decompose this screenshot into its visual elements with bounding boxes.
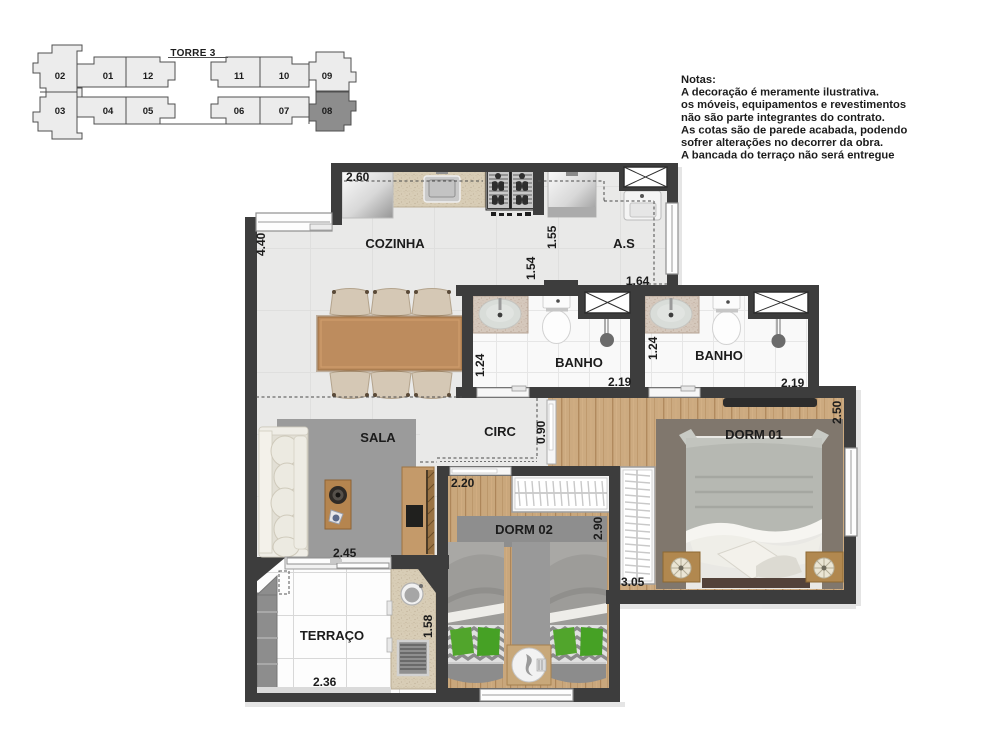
- svg-text:As cotas são de parede acabada: As cotas são de parede acabada, podendo: [681, 124, 907, 136]
- svg-text:03: 03: [55, 106, 66, 117]
- svg-text:BANHO: BANHO: [695, 348, 743, 363]
- svg-text:SALA: SALA: [360, 430, 396, 445]
- svg-text:02: 02: [55, 71, 66, 82]
- svg-text:BANHO: BANHO: [555, 355, 603, 370]
- svg-text:4.40: 4.40: [254, 232, 268, 256]
- svg-text:1.24: 1.24: [646, 336, 660, 360]
- svg-text:A decoração é meramente ilustr: A decoração é meramente ilustrativa.: [681, 87, 879, 99]
- svg-text:2.19: 2.19: [608, 375, 632, 389]
- svg-text:05: 05: [143, 106, 154, 117]
- svg-text:2.45: 2.45: [333, 546, 357, 560]
- svg-text:1.54: 1.54: [524, 256, 538, 280]
- svg-text:06: 06: [234, 106, 245, 117]
- svg-text:2.90: 2.90: [591, 516, 605, 540]
- svg-text:DORM 02: DORM 02: [495, 522, 553, 537]
- svg-text:TORRE 3: TORRE 3: [170, 48, 215, 59]
- svg-text:1.55: 1.55: [545, 225, 559, 249]
- svg-text:11: 11: [234, 71, 245, 82]
- svg-text:09: 09: [322, 71, 333, 82]
- svg-text:A bancada do terraço não será: A bancada do terraço não será entregue: [681, 150, 894, 162]
- svg-text:TERRAÇO: TERRAÇO: [300, 628, 364, 643]
- svg-text:2.36: 2.36: [313, 675, 337, 689]
- svg-text:os móveis, equipamentos e reve: os móveis, equipamentos e revestimentos: [681, 99, 906, 111]
- svg-text:08: 08: [322, 106, 333, 117]
- svg-text:0.90: 0.90: [534, 420, 548, 444]
- svg-text:1.64: 1.64: [626, 274, 650, 288]
- svg-text:2.60: 2.60: [346, 170, 370, 184]
- svg-text:Notas:: Notas:: [681, 74, 716, 86]
- svg-text:04: 04: [103, 106, 114, 117]
- svg-text:não são parte integrantes do c: não são parte integrantes do contrato.: [681, 112, 885, 124]
- svg-text:12: 12: [143, 71, 154, 82]
- svg-text:CIRC: CIRC: [484, 424, 516, 439]
- svg-text:DORM 01: DORM 01: [725, 427, 783, 442]
- svg-text:2.50: 2.50: [830, 400, 844, 424]
- svg-text:1.24: 1.24: [473, 353, 487, 377]
- svg-text:07: 07: [279, 106, 290, 117]
- svg-text:2.19: 2.19: [781, 376, 805, 390]
- svg-text:10: 10: [279, 71, 290, 82]
- svg-text:3.05: 3.05: [621, 575, 645, 589]
- svg-text:2.20: 2.20: [451, 476, 475, 490]
- svg-text:01: 01: [103, 71, 114, 82]
- svg-text:1.58: 1.58: [421, 614, 435, 638]
- svg-text:COZINHA: COZINHA: [365, 236, 425, 251]
- svg-text:sofrer alterações no decorrer: sofrer alterações no decorrer da obra.: [681, 137, 883, 149]
- svg-text:A.S: A.S: [613, 236, 635, 251]
